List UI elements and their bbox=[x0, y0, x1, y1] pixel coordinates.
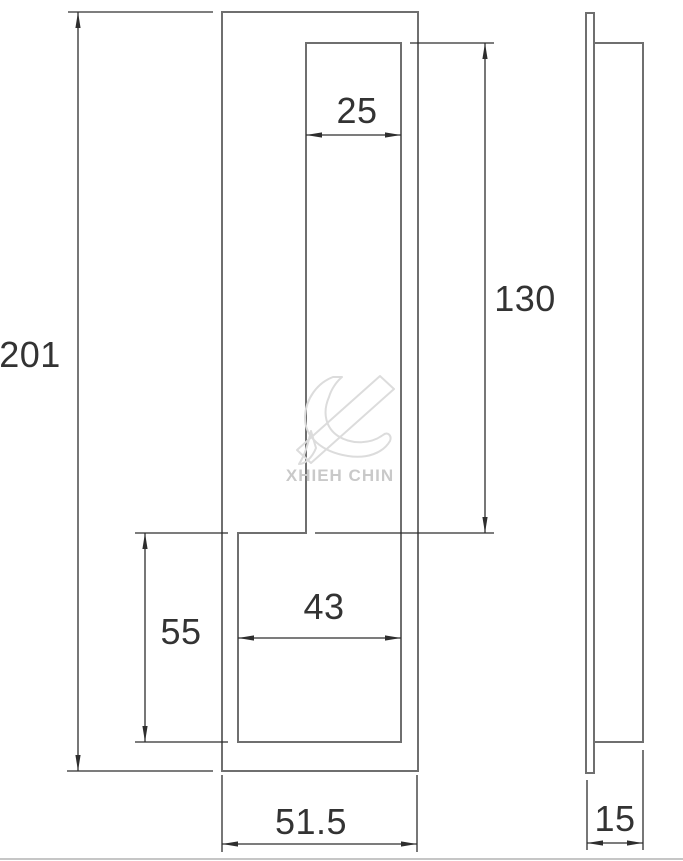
arrow-15-right bbox=[627, 840, 643, 845]
front-view-recess-outline bbox=[238, 43, 401, 742]
arrow-43-left bbox=[238, 635, 254, 640]
arrow-201-up bbox=[75, 12, 80, 28]
dimension-arrowheads bbox=[75, 12, 643, 847]
arrow-55-up bbox=[142, 533, 147, 549]
dim-label-slot-height: 130 bbox=[494, 281, 556, 317]
dimension-lines bbox=[67, 12, 643, 852]
dim-label-depth: 15 bbox=[594, 801, 635, 837]
side-view bbox=[586, 13, 643, 773]
arrow-51-5-right bbox=[401, 841, 417, 846]
dim-label-lower-recess-width: 43 bbox=[303, 589, 344, 625]
side-view-body bbox=[594, 43, 643, 742]
arrow-15-left bbox=[587, 840, 603, 845]
arrow-130-down bbox=[482, 517, 487, 533]
side-view-faceplate bbox=[586, 13, 594, 773]
arrow-201-down bbox=[75, 755, 80, 771]
dim-label-overall-height: 201 bbox=[0, 337, 61, 373]
technical-drawing-page: 201 25 130 55 43 51.5 15 XHIEH CHIN bbox=[0, 0, 683, 861]
arrow-51-5-left bbox=[222, 841, 238, 846]
front-view bbox=[222, 12, 418, 771]
arrow-130-up bbox=[482, 43, 487, 59]
dim-label-lower-recess-height: 55 bbox=[160, 614, 201, 650]
dim-label-slot-width: 25 bbox=[336, 93, 377, 129]
dim-label-overall-width: 51.5 bbox=[275, 804, 347, 840]
arrow-55-down bbox=[142, 726, 147, 742]
arrow-25-left bbox=[306, 132, 322, 137]
arrow-25-right bbox=[385, 132, 401, 137]
watermark-logo-swoosh bbox=[305, 377, 391, 457]
watermark-logo-band bbox=[297, 376, 394, 463]
watermark-x-logo-icon bbox=[297, 376, 394, 464]
front-view-outline bbox=[222, 12, 418, 771]
arrow-43-right bbox=[385, 635, 401, 640]
watermark-text: XHIEH CHIN bbox=[286, 467, 394, 484]
